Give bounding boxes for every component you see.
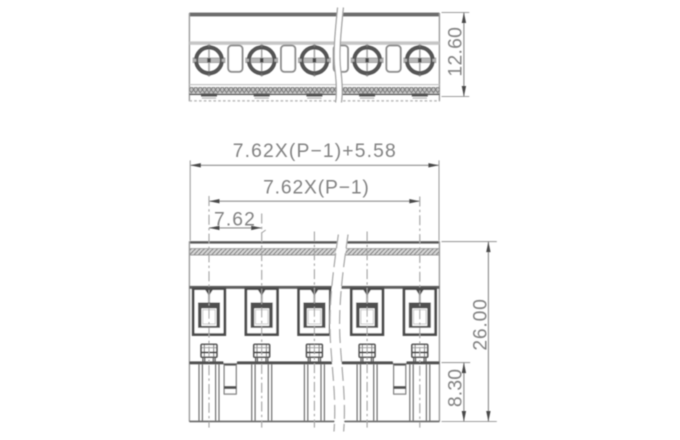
svg-text:12.60: 12.60 bbox=[446, 27, 467, 77]
svg-text:8.30: 8.30 bbox=[445, 369, 466, 407]
svg-text:7.62: 7.62 bbox=[214, 209, 256, 230]
svg-text:7.62X(P−1): 7.62X(P−1) bbox=[263, 177, 370, 198]
svg-text:26.00: 26.00 bbox=[471, 298, 492, 350]
svg-text:7.62X(P−1)+5.58: 7.62X(P−1)+5.58 bbox=[233, 141, 397, 162]
